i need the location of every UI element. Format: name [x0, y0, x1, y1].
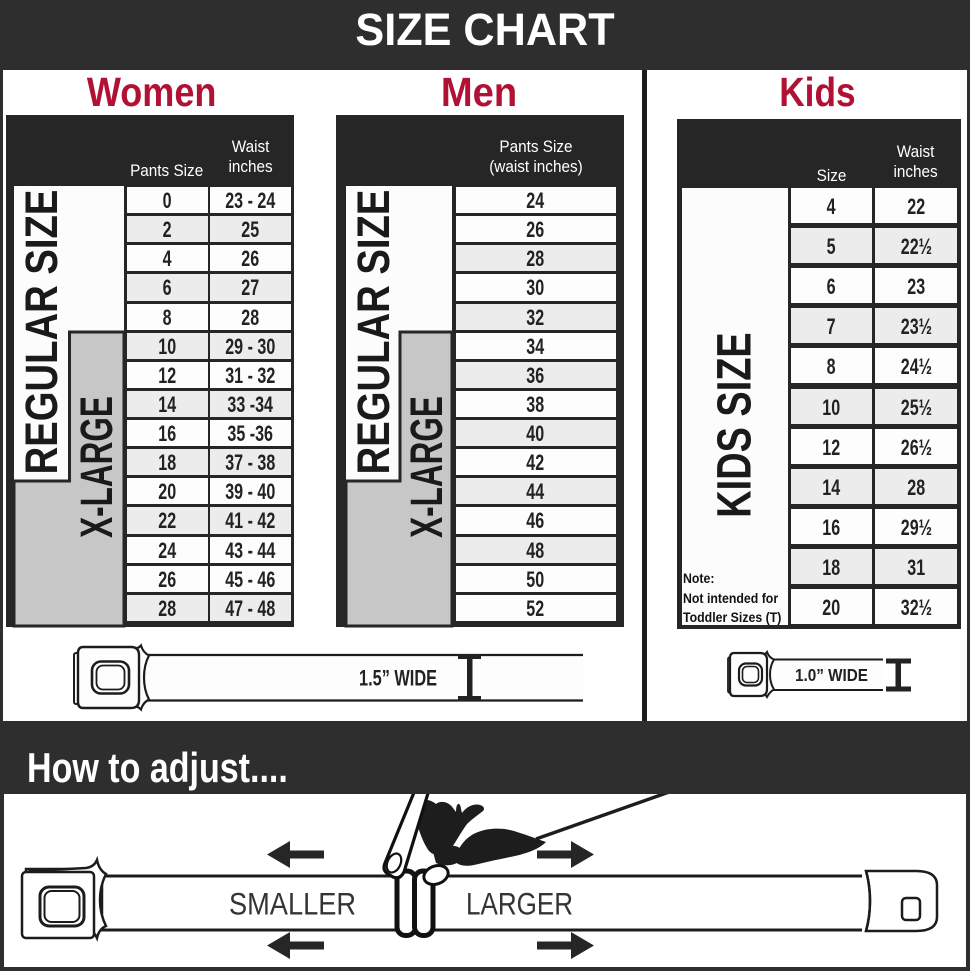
svg-text:LARGER: LARGER [466, 886, 573, 922]
svg-text:SMALLER: SMALLER [229, 886, 356, 922]
svg-text:1.5” WIDE: 1.5” WIDE [359, 666, 437, 691]
svg-text:1.0” WIDE: 1.0” WIDE [795, 665, 868, 685]
